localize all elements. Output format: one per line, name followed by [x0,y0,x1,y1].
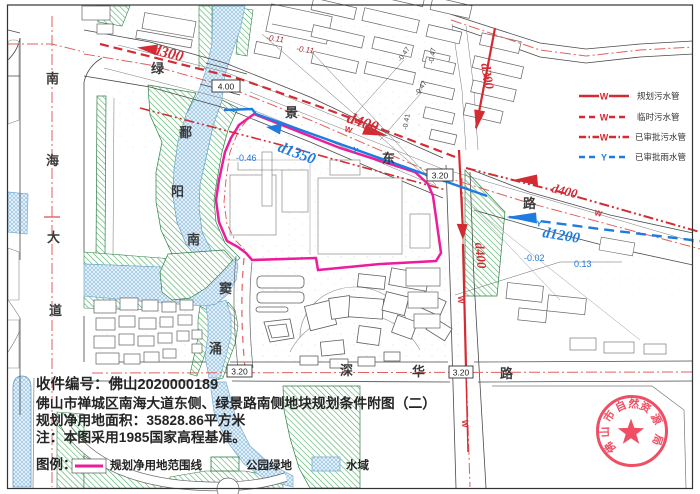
svg-text:4.00: 4.00 [218,82,235,92]
svg-text:山: 山 [597,426,611,437]
svg-text:W: W [456,296,465,304]
svg-text:3.20: 3.20 [231,367,248,377]
svg-text:已审批污水管: 已审批污水管 [635,132,686,142]
svg-text:景: 景 [285,105,298,120]
svg-text:海: 海 [46,153,59,168]
svg-text:佛山市禅城区南海大道东侧、绿景路南侧地块规划条件附图（二）: 佛山市禅城区南海大道东侧、绿景路南侧地块规划条件附图（二） [35,395,436,411]
svg-text:大: 大 [47,230,60,245]
svg-text:深: 深 [340,363,353,378]
svg-text:W: W [600,92,609,102]
svg-text:东: 东 [382,151,395,166]
svg-text:临时污水管: 临时污水管 [637,112,680,122]
svg-text:W: W [600,113,609,123]
svg-text:公园绿地: 公园绿地 [246,458,292,472]
svg-text:道: 道 [49,303,62,318]
svg-text:W: W [460,420,469,428]
svg-text:图例：: 图例： [36,456,77,472]
svg-text:已审批雨水管: 已审批雨水管 [635,152,686,162]
svg-text:窦: 窦 [219,281,232,296]
svg-text:-0.46: -0.46 [236,153,257,163]
svg-text:3.20: 3.20 [432,171,449,181]
svg-text:0.13: 0.13 [574,259,592,269]
svg-text:鄱: 鄱 [178,125,192,140]
svg-text:绿: 绿 [151,61,165,76]
svg-text:3.20: 3.20 [453,368,470,378]
svg-text:规划污水管: 规划污水管 [637,91,680,101]
svg-text:路: 路 [500,366,514,381]
svg-text:南: 南 [46,71,59,86]
svg-text:水域: 水域 [346,458,369,472]
svg-text:Y: Y [601,153,607,163]
svg-text:W: W [600,133,609,143]
svg-text:涌: 涌 [209,341,222,356]
svg-text:收件编号：佛山2020000189: 收件编号：佛山2020000189 [36,375,218,393]
svg-text:注：本图采用1985国家高程基准。: 注：本图采用1985国家高程基准。 [36,429,246,445]
svg-text:路: 路 [523,196,537,211]
svg-text:d400: d400 [472,242,490,270]
svg-text:华: 华 [412,364,425,379]
svg-text:规划净用地范围线: 规划净用地范围线 [110,458,202,472]
svg-text:规划净用地面积：35828.86平方米: 规划净用地面积：35828.86平方米 [36,412,246,428]
svg-text:南: 南 [187,232,200,247]
svg-text:阳: 阳 [171,184,184,199]
